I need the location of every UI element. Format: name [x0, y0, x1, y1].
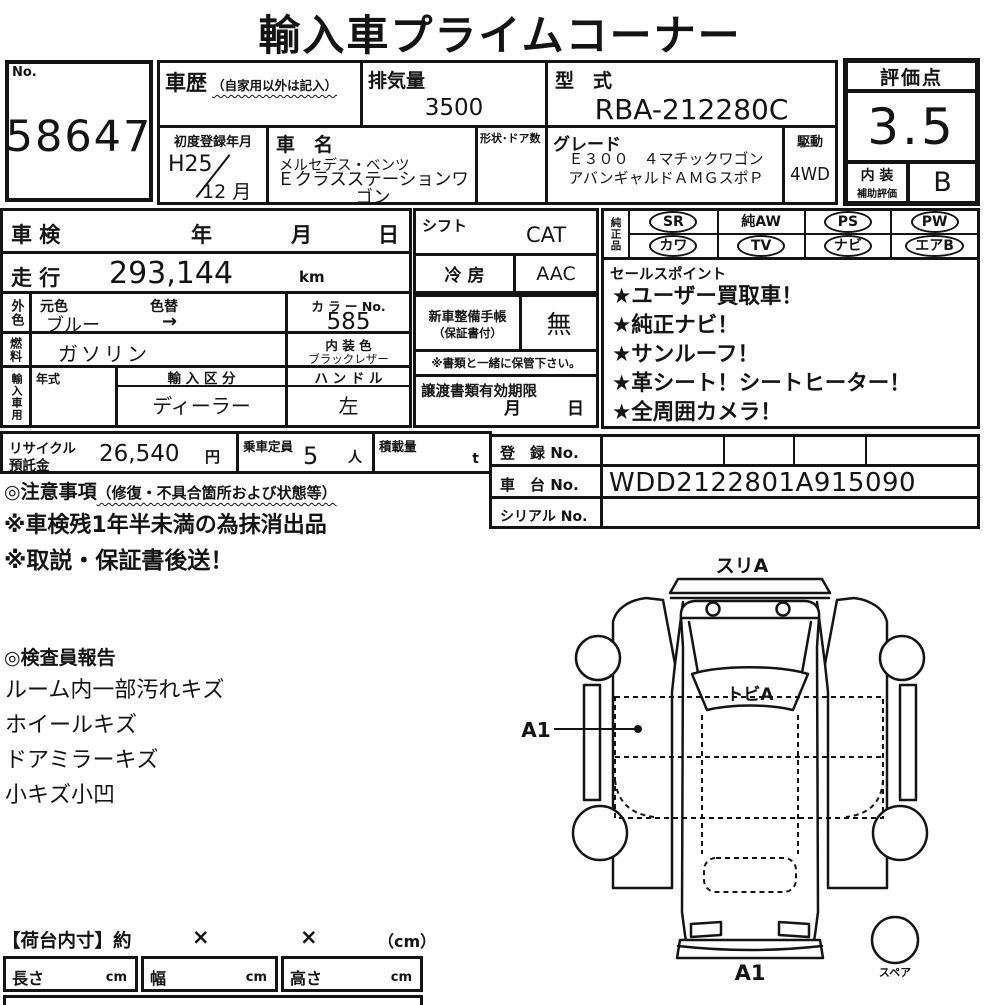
cargo-times-1: ×: [192, 925, 210, 949]
capacity-cell: 乗車定員 5 人: [236, 431, 375, 474]
diagram-left-marker: A1: [521, 718, 550, 742]
rating-box: 評価点 3.5 内 装 補助評価 B: [843, 58, 980, 206]
caution-line: ※取説・保証書後送！: [4, 541, 233, 575]
genuine-parts-grid: SR 純AW PS PW カワ TV ナビ エアB: [630, 211, 977, 257]
load-label: 積載量: [379, 436, 417, 455]
first-registration-label: 初度登録年月: [160, 131, 266, 150]
cargo-height-label: 高さ: [290, 965, 322, 989]
interior-rating-row: 内 装 補助評価 B: [848, 160, 975, 201]
aircon-label-cell: 冷 房: [413, 253, 516, 294]
cargo-length-unit: cm: [106, 970, 127, 985]
chassis-no-label: 車 台 No.: [500, 474, 579, 495]
serial-no-label: シリアル No.: [500, 506, 587, 526]
chassis-no-row: 車 台 No. WDD2122801A915090: [489, 464, 980, 499]
import-section-label: 輸入車用: [0, 365, 32, 428]
model-year-label: 年式: [36, 370, 60, 387]
inspector-report-line: ルーム内一部汚れキズ: [5, 672, 224, 704]
inspection-day: 日: [378, 219, 399, 249]
cargo-next-row-partial: [3, 995, 423, 1005]
import-division-label: 輸 入 区 分: [118, 368, 285, 387]
vehicle-history-note: （自家用以外は記入）: [212, 78, 337, 93]
recycle-deposit-cell: リサイクル 預託金 26,540 円: [0, 431, 239, 474]
inspection-row: 車 検 年 月 日: [0, 208, 412, 254]
service-book-label-1: 新車整備手帳: [428, 306, 506, 325]
recycle-label-2: 預託金: [9, 454, 50, 474]
service-book-note: ※書類と一緒に保管下さい。: [431, 355, 580, 371]
capacity-unit: 人: [348, 447, 362, 467]
diagram-spare-label: スペア: [879, 966, 911, 979]
spare-tire-icon: [872, 917, 918, 963]
auction-sheet: { "colors": { "ink": "#141414", "paper":…: [0, 0, 1000, 1000]
repaint-arrow: →: [162, 311, 177, 332]
service-book-note-cell: ※書類と一緒に保管下さい。: [413, 349, 599, 377]
cargo-height-cell: 高さ cm: [281, 956, 423, 992]
exterior-color-cell: 元色 色替 ブルー →: [29, 291, 288, 334]
service-book-label-2: （保証書付）: [433, 325, 502, 341]
handle-cell: ハ ン ド ル 左: [285, 365, 412, 428]
fuel-value: ガソリン: [58, 338, 150, 367]
color-no-cell: カ ラ ー No. 585: [285, 291, 412, 334]
equip-jun-aw: 純AW: [733, 213, 789, 231]
aircon-label: 冷 房: [445, 261, 485, 286]
diagram-bottom-label: A1: [735, 961, 766, 985]
car-damage-diagram: スリA トビA A1 A1 スペア: [520, 552, 1000, 1000]
interior-label-bottom: 補助評価: [857, 185, 897, 200]
mileage-label: 走 行: [11, 262, 60, 292]
rating-score: 3.5: [848, 93, 975, 160]
recycle-unit: 円: [205, 446, 220, 467]
divider: [600, 437, 603, 464]
equip-kawa: カワ: [649, 235, 697, 257]
inspector-report-line: ホイールキズ: [5, 707, 137, 739]
model-code-label: 型 式: [555, 66, 612, 93]
cargo-height-unit: cm: [391, 970, 412, 985]
inspector-report-line: ドアミラーキズ: [5, 742, 159, 774]
cargo-length-cell: 長さ cm: [3, 956, 138, 992]
fuel-cell: ガソリン: [29, 331, 288, 368]
cargo-times-2: ×: [300, 925, 318, 949]
divider: [723, 437, 725, 464]
interior-color-cell: 内 装 色 ブラックレザー: [285, 331, 412, 368]
model-code-value: RBA-212280C: [548, 93, 835, 126]
equip-navi: ナビ: [824, 235, 872, 257]
genuine-parts-box: 純正品 SR 純AW PS PW カワ TV ナビ エアB: [601, 208, 980, 260]
inspection-year: 年: [191, 219, 212, 249]
exterior-color-label: 外色: [0, 291, 32, 334]
load-cell: 積載量 t: [372, 431, 492, 474]
import-division-cell: 輸 入 区 分 ディーラー: [115, 365, 288, 428]
inspection-label: 車 検: [11, 219, 60, 249]
model-code-cell: 型 式 RBA-212280C: [545, 60, 838, 128]
transfer-docs-day: 日: [567, 394, 584, 419]
genuine-parts-label: 純正品: [604, 211, 630, 257]
drive-value: 4WD: [787, 164, 833, 185]
cargo-width-cell: 幅 cm: [141, 956, 278, 992]
sales-points-label: セールスポイント: [610, 263, 726, 284]
first-registration-year: H25: [168, 152, 213, 177]
cargo-heading: 【荷台内寸】約: [2, 927, 132, 953]
serial-no-row: シリアル No.: [489, 496, 980, 529]
service-book-cell: 新車整備手帳 （保証書付） 無: [413, 294, 599, 352]
lot-number-value: 58647: [9, 64, 149, 198]
lot-number-box: No. 58647: [5, 60, 153, 202]
displacement-label: 排気量: [368, 66, 425, 93]
service-book-value: 無: [522, 297, 596, 349]
equip-tv: TV: [737, 235, 785, 257]
divider: [793, 437, 795, 464]
load-unit: t: [472, 451, 479, 467]
interior-grade-value: B: [910, 164, 975, 201]
equip-airbag: エアB: [905, 235, 964, 257]
capacity-label: 乗車定員: [243, 436, 293, 455]
transfer-docs-cell: 譲渡書類有効期限 月 日: [413, 374, 599, 428]
inspector-report-line: 小キズ小凹: [5, 777, 115, 809]
inspector-report-heading: ◎検査員報告: [4, 643, 116, 670]
shift-value: CAT: [526, 223, 566, 247]
divider: [600, 499, 603, 526]
diagram-windshield-label: トビA: [726, 685, 774, 705]
marker-pointer-dot: [634, 725, 642, 733]
diagram-body-lines: [573, 579, 927, 958]
sales-point-item: ★全周囲カメラ！: [612, 398, 911, 427]
drive-cell: 駆動 4WD: [782, 125, 838, 205]
cautions-heading: ◎注意事項（修復・不具合箇所および状態等）: [4, 477, 337, 504]
cargo-unit-note: （cm）: [378, 928, 436, 952]
recycle-value: 26,540: [99, 441, 179, 467]
caution-line: ※車検残1年半未満の為抹消出品: [4, 507, 327, 539]
sales-point-item: ★純正ナビ！: [612, 311, 911, 340]
divider: [865, 437, 867, 464]
car-name-cell: 車 名 メルセデス・ベンツ Ｅクラスステーションワゴン: [266, 125, 478, 205]
inspection-month: 月: [291, 219, 312, 249]
car-name-value: Ｅクラスステーションワゴン: [273, 171, 473, 207]
capacity-value: 5: [303, 442, 318, 470]
chassis-no-value: WDD2122801A915090: [609, 468, 916, 498]
mileage-value: 293,144: [109, 256, 233, 291]
shift-label: シフト: [422, 215, 467, 236]
cautions-heading-text: ◎注意事項: [4, 481, 97, 503]
car-name-label: 車 名: [276, 130, 333, 157]
sales-point-item: ★ユーザー買取車！: [612, 282, 911, 311]
page-title: 輸入車プライムコーナー: [0, 2, 1000, 63]
divider: [600, 467, 603, 496]
mileage-row: 走 行 293,144 km: [0, 251, 412, 294]
first-registration-cell: 初度登録年月 H25 12 月: [157, 125, 269, 205]
vehicle-history-label: 車歴: [165, 71, 207, 95]
cautions-heading-note: （修復・不具合箇所および状態等）: [97, 484, 337, 502]
import-division-value: ディーラー: [118, 387, 285, 421]
interior-label-top: 内 装: [861, 165, 894, 185]
sales-points-box: セールスポイント ★ユーザー買取車！ ★純正ナビ！ ★サンルーフ！ ★革シート！…: [601, 257, 980, 429]
fuel-label: 燃料: [0, 331, 32, 368]
body-doors-cell: 形状･ドア数: [475, 125, 548, 205]
cargo-width-label: 幅: [150, 965, 166, 989]
shift-cell: シフト CAT: [413, 208, 599, 256]
body-doors-label: 形状･ドア数: [480, 130, 541, 146]
cargo-width-unit: cm: [246, 970, 267, 985]
sales-point-item: ★サンルーフ！: [612, 340, 911, 369]
displacement-cell: 排気量 3500: [360, 60, 548, 128]
equip-pw: PW: [911, 211, 959, 233]
transfer-docs-month: 月: [504, 394, 521, 419]
registration-no-row: 登 録 No.: [489, 434, 980, 467]
grade-value: Ｅ３００ ４マチックワゴンアバンギャルドＡＭＧスポＰ: [566, 150, 766, 187]
handle-label: ハ ン ド ル: [288, 368, 409, 387]
handle-value: 左: [288, 387, 409, 421]
cargo-length-label: 長さ: [12, 965, 44, 989]
diagram-top-label: スリA: [716, 555, 769, 577]
grade-cell: グレード Ｅ３００ ４マチックワゴンアバンギャルドＡＭＧスポＰ: [545, 125, 785, 205]
model-year-cell: 年式: [29, 365, 118, 428]
aircon-value-cell: AAC: [513, 253, 599, 294]
registration-no-label: 登 録 No.: [500, 442, 579, 463]
mileage-unit: km: [299, 268, 325, 286]
equip-sr: SR: [649, 211, 697, 233]
drive-label: 駆動: [785, 131, 835, 150]
equip-ps: PS: [824, 211, 872, 233]
sales-point-item: ★革シート！シートヒーター！: [612, 369, 911, 398]
displacement-value: 3500: [363, 95, 545, 121]
rating-label: 評価点: [880, 63, 943, 90]
vehicle-history-cell: 車歴 （自家用以外は記入）: [157, 60, 363, 128]
first-registration-month: 12 月: [202, 177, 251, 204]
